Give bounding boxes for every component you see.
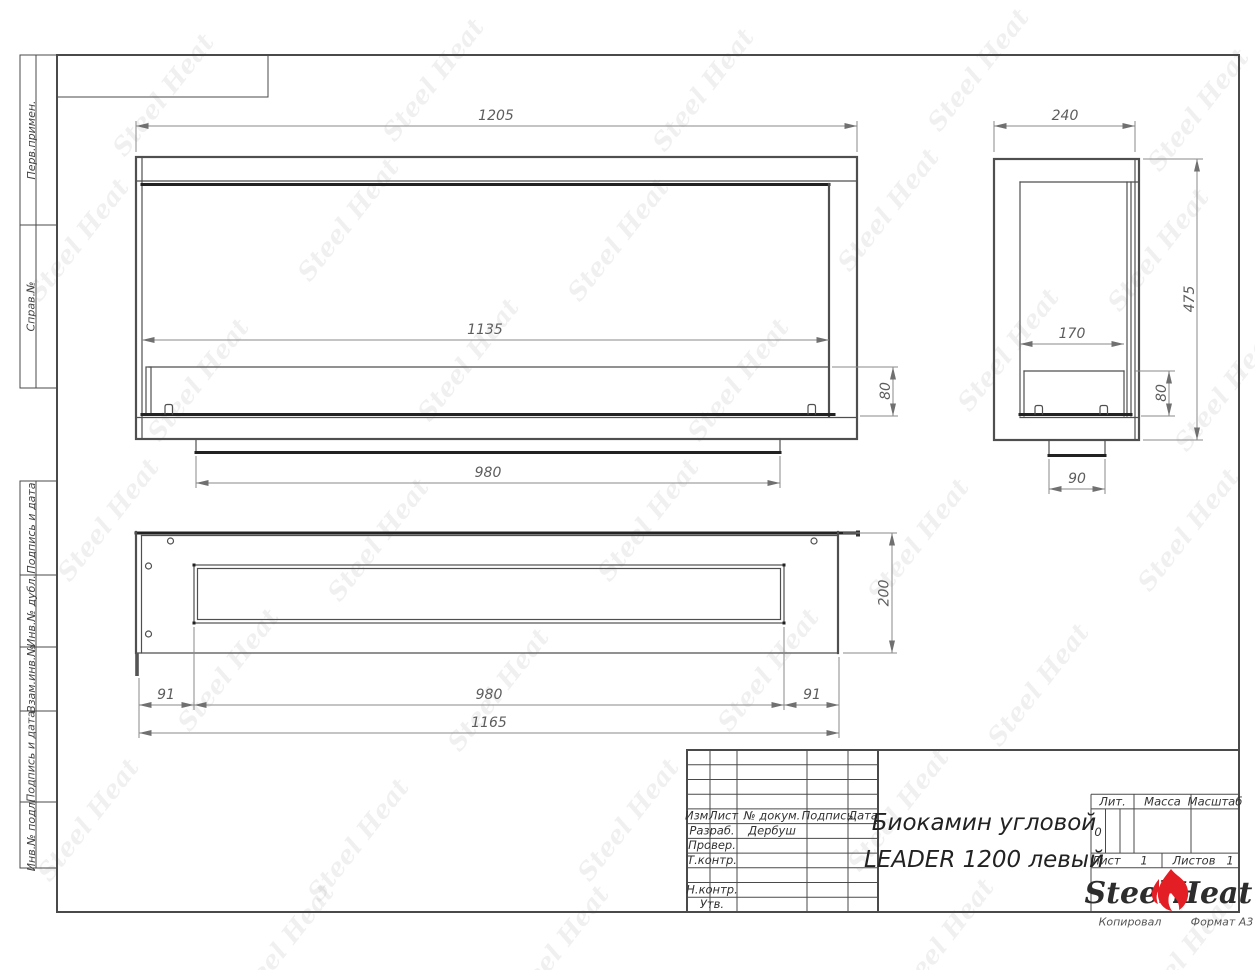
lit-label: Лит. (1098, 795, 1125, 809)
document-title-line1: Биокамин угловой (872, 810, 1097, 836)
lit-value: 0 (1094, 825, 1101, 839)
burner-pin-right (1100, 406, 1108, 415)
margin-label-perv-primen: Перв.примен. (25, 100, 38, 179)
svg-text:90: 90 (1068, 471, 1086, 487)
svg-text:Steel Heat: Steel Heat (887, 873, 1001, 970)
svg-text:Steel Heat: Steel Heat (832, 143, 946, 277)
svg-text:170: 170 (1059, 326, 1086, 342)
margin-label-inv-podl: Инв.№ подл. (25, 799, 38, 871)
svg-text:475: 475 (1182, 286, 1198, 313)
svg-text:80: 80 (878, 382, 894, 400)
svg-text:1165: 1165 (471, 715, 507, 731)
razrab-label: Разраб. (689, 824, 734, 838)
svg-text:Steel Heat: Steel Heat (502, 880, 616, 970)
front-dim-burner-height: 80 (832, 367, 898, 416)
svg-text:Steel Heat: Steel Heat (562, 173, 676, 307)
svg-text:200: 200 (877, 580, 893, 607)
svg-text:Steel Heat: Steel Heat (22, 173, 136, 307)
footer-format: Формат А3 (1191, 916, 1254, 929)
svg-text:80: 80 (1154, 384, 1170, 402)
burner-pin-right (808, 405, 816, 415)
svg-text:1135: 1135 (467, 322, 503, 338)
drawing-sheet: Steel Heat Steel Heat Steel Heat Steel H… (0, 0, 1255, 970)
front-dim-width: 1205 (136, 108, 857, 152)
footer-copy: Копировал (1099, 916, 1162, 929)
razrab-value: Дербуш (747, 824, 796, 838)
svg-text:Steel Heat: Steel Heat (922, 3, 1036, 137)
front-flange-stub (135, 653, 139, 676)
masshtab-label: Масштаб (1188, 795, 1243, 809)
listov-label: Листов (1172, 854, 1216, 868)
mount-hole (811, 538, 817, 544)
margin-label-sprav-no: Справ.№ (25, 281, 38, 331)
margin-label-podpis-data-1: Подпись и дата (25, 482, 38, 573)
svg-text:Steel Heat: Steel Heat (647, 23, 761, 157)
listov-value: 1 (1226, 854, 1233, 868)
svg-text:Steel Heat: Steel Heat (292, 153, 406, 287)
svg-text:Steel Heat: Steel Heat (107, 28, 221, 162)
svg-text:91: 91 (803, 687, 821, 703)
margin-label-podpis-data-2: Подпись и дата (25, 711, 38, 802)
svg-text:1205: 1205 (478, 108, 514, 124)
svg-text:980: 980 (476, 687, 503, 703)
svg-text:Steel Heat: Steel Heat (227, 878, 341, 970)
svg-text:Steel Heat: Steel Heat (592, 453, 706, 587)
mount-hole (146, 563, 152, 569)
nkontr-label: Н.контр. (686, 883, 737, 897)
list-label: Лист (1090, 854, 1120, 868)
tkontr-label: Т.контр. (687, 853, 737, 867)
side-dim-base-depth: 90 (1049, 459, 1105, 494)
svg-text:Steel Heat: Steel Heat (1142, 43, 1255, 177)
col-podpis: Подпись (802, 809, 854, 823)
prover-label: Провер. (688, 838, 736, 852)
svg-text:Steel Heat: Steel Heat (682, 313, 796, 447)
svg-text:Steel Heat: Steel Heat (52, 453, 166, 587)
burner-pin-left (1035, 406, 1043, 415)
side-dim-burner-height: 80 (1134, 371, 1175, 416)
steel-heat-logo: Steel Heat (1084, 869, 1252, 911)
col-list: Лист (708, 809, 738, 823)
list-value: 1 (1140, 854, 1147, 868)
svg-text:91: 91 (157, 687, 175, 703)
svg-text:Steel Heat: Steel Heat (322, 473, 436, 607)
svg-text:Steel Heat: Steel Heat (1102, 183, 1216, 317)
utv-label: Утв. (700, 897, 724, 911)
mount-hole (146, 631, 152, 637)
mount-hole (168, 538, 174, 544)
side-dim-depth: 240 (994, 108, 1135, 152)
col-dokum: № докум. (743, 809, 801, 823)
svg-text:Steel Heat: Steel Heat (952, 283, 1066, 417)
svg-text:Steel Heat: Steel Heat (32, 753, 146, 887)
margin-label-vzam-inv: Взам.инв.№ (25, 645, 38, 713)
svg-text:Steel Heat: Steel Heat (982, 618, 1096, 752)
svg-text:Steel Heat: Steel Heat (412, 293, 526, 427)
svg-text:Steel Heat: Steel Heat (142, 313, 256, 447)
burner-opening (194, 565, 784, 623)
drawing-canvas: Steel Heat Steel Heat Steel Heat Steel H… (0, 0, 1255, 970)
svg-text:240: 240 (1052, 108, 1079, 124)
burner-glass-edge (146, 367, 151, 415)
svg-text:980: 980 (475, 465, 502, 481)
svg-text:Steel Heat: Steel Heat (1169, 323, 1255, 457)
svg-text:Steel Heat: Steel Heat (572, 753, 686, 887)
document-title-line2: LEADER 1200 левый (864, 847, 1104, 873)
svg-text:Steel Heat: Steel Heat (1132, 463, 1246, 597)
margin-label-inv-dubl: Инв.№ дубл. (25, 575, 38, 647)
massa-label: Масса (1144, 795, 1181, 809)
